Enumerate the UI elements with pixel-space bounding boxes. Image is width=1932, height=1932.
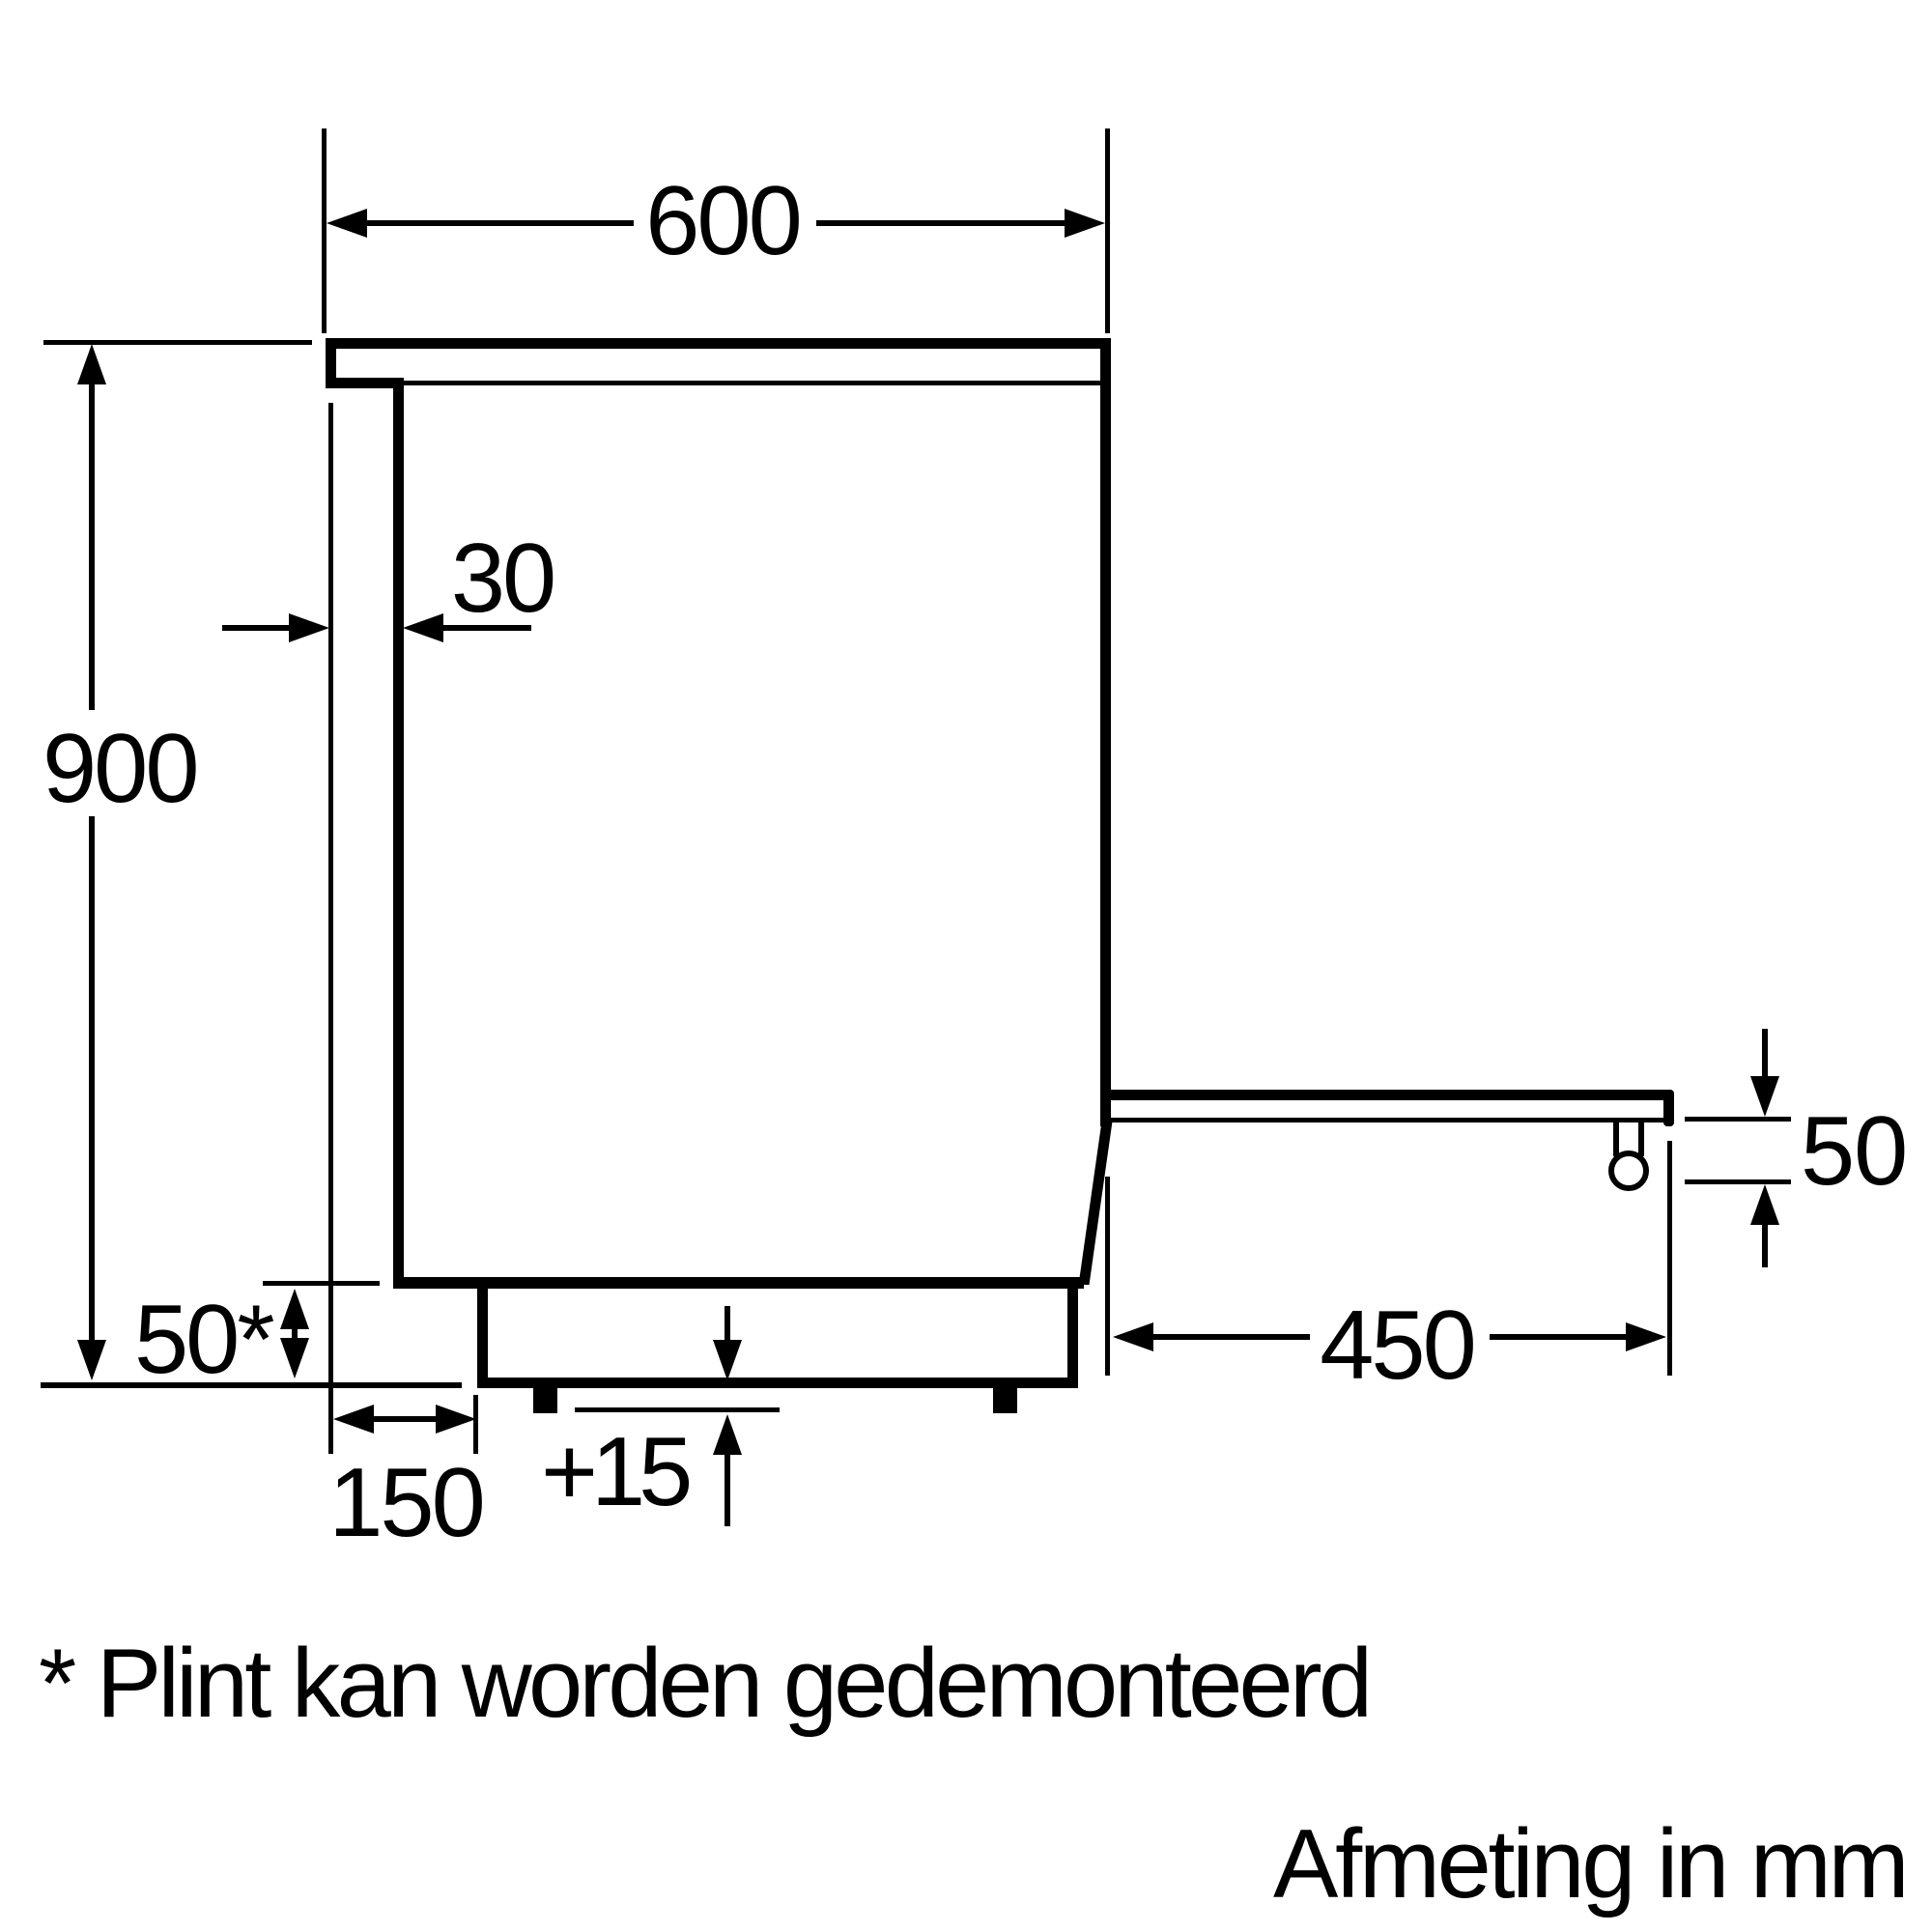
svg-text:900: 900 [43, 715, 197, 823]
svg-text:* Plint kan worden gedemonteer: * Plint kan worden gedemonteerd [39, 1630, 1369, 1738]
svg-text:30: 30 [451, 525, 554, 633]
svg-text:450: 450 [1320, 1292, 1474, 1400]
svg-text:Afmeting in mm: Afmeting in mm [1273, 1810, 1906, 1918]
svg-text:50*: 50* [134, 1286, 273, 1394]
svg-text:50: 50 [1801, 1097, 1907, 1206]
svg-text:+15: +15 [541, 1418, 689, 1526]
svg-text:600: 600 [645, 167, 800, 275]
svg-text:150: 150 [328, 1449, 483, 1557]
